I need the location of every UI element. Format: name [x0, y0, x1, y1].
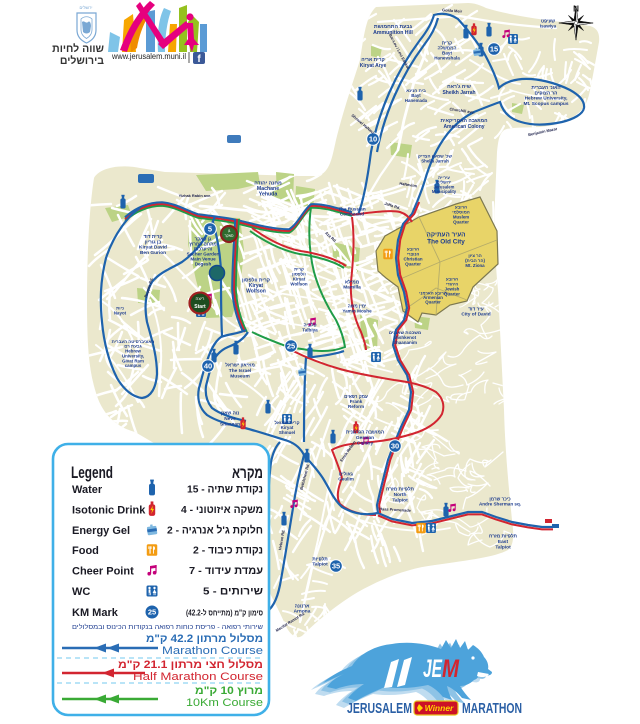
svg-text:Energy Gel: Energy Gel — [72, 525, 130, 537]
svg-text:האונ' העברית: האונ' העברית — [531, 85, 560, 91]
svg-text:Quarter: Quarter — [453, 219, 469, 224]
svg-text:Water: Water — [72, 484, 103, 496]
svg-text:East: East — [498, 539, 509, 545]
svg-text:M: M — [442, 655, 460, 683]
svg-text:Shella Jarrah: Shella Jarrah — [421, 158, 449, 163]
svg-text:JE: JE — [423, 655, 443, 683]
svg-text:Kiryat Arye: Kiryat Arye — [360, 63, 387, 69]
svg-text:קרית דוד: קרית דוד — [143, 235, 162, 240]
svg-text:שירותים - 5: שירותים - 5 — [203, 586, 264, 598]
svg-text:Benjamin Mazar: Benjamin Mazar — [528, 126, 558, 137]
svg-text:מקרא: מקרא — [232, 465, 263, 482]
svg-text:Marathon Course: Marathon Course — [162, 645, 263, 657]
svg-text:ממילא: ממילא — [345, 279, 360, 285]
svg-text:Mt. Scopus campus: Mt. Scopus campus — [523, 101, 568, 107]
svg-text:מסלול חצי מרתון 21.1 ק"מ: מסלול חצי מרתון 21.1 ק"מ — [118, 658, 263, 671]
svg-text:חלוקת ג'ל אנרגיה - 2: חלוקת ג'ל אנרגיה - 2 — [167, 525, 263, 537]
svg-text:Yizhak Rabin ave.: Yizhak Rabin ave. — [179, 193, 212, 198]
svg-text:City of David: City of David — [461, 312, 490, 318]
svg-text:מוזיאון ישראל: מוזיאון ישראל — [225, 363, 255, 369]
svg-text:Municipality: Municipality — [432, 189, 457, 194]
svg-text:גן: גן — [228, 229, 231, 233]
svg-text:Shmuel: Shmuel — [279, 430, 295, 435]
svg-text:שירותי רפואה - פריסת כוחות רפו: שירותי רפואה - פריסת כוחות רפואה בנקודות… — [72, 623, 263, 631]
svg-text:MARATHON: MARATHON — [462, 701, 522, 717]
svg-text:ריצה: ריצה — [196, 296, 205, 301]
svg-text:תלפיות מזרח: תלפיות מזרח — [489, 534, 518, 540]
svg-text:Compound: Compound — [340, 212, 364, 217]
svg-text:JERUSALEM: JERUSALEM — [347, 701, 412, 717]
svg-text:Reform: Reform — [348, 404, 364, 409]
svg-text:סאקר: סאקר — [224, 234, 234, 238]
svg-text:Degesh: Degesh — [195, 262, 212, 267]
svg-text:Legend: Legend — [71, 463, 113, 482]
svg-text:Shaananim: Shaananim — [393, 340, 417, 345]
svg-text:סימון ק"מ (מתייחס ל-42.2): סימון ק"מ (מתייחס ל-42.2) — [186, 609, 263, 618]
svg-text:Wolfson: Wolfson — [246, 289, 266, 295]
svg-text:North: North — [394, 492, 407, 498]
svg-text:www.jerusalem.muni.il: www.jerusalem.muni.il — [111, 51, 186, 61]
svg-text:Talbiya: Talbiya — [302, 328, 318, 333]
svg-text:American Colony: American Colony — [443, 124, 484, 130]
svg-text:campus: campus — [125, 363, 142, 368]
svg-text:עמדת עידוד - 7: עמדת עידוד - 7 — [189, 565, 263, 577]
svg-text:Colony: Colony — [357, 440, 374, 446]
svg-text:The Israel: The Israel — [229, 368, 251, 374]
svg-text:Sheikh Jarrah: Sheikh Jarrah — [442, 90, 475, 96]
svg-text:40: 40 — [204, 362, 212, 371]
svg-text:Talpiot: Talpiot — [495, 544, 511, 550]
svg-text:תלפיות: תלפיות — [312, 556, 328, 562]
svg-text:German: German — [356, 435, 374, 441]
svg-text:WC: WC — [72, 586, 90, 598]
svg-text:The Old City: The Old City — [427, 239, 465, 246]
svg-text:Andre Sherman sq.: Andre Sherman sq. — [479, 502, 521, 507]
svg-text:15: 15 — [490, 45, 498, 54]
svg-text:Talpiot: Talpiot — [392, 497, 408, 503]
svg-text:ירושלים: ירושלים — [80, 5, 93, 10]
svg-text:KM Mark: KM Mark — [72, 607, 119, 619]
svg-text:Shaanan: Shaanan — [220, 421, 240, 427]
svg-text:מרוץ 10 ק"מ: מרוץ 10 ק"מ — [195, 685, 263, 697]
svg-text:Isotonic Drink: Isotonic Drink — [72, 505, 146, 517]
svg-text:העיר העתיקה: העיר העתיקה — [427, 232, 466, 239]
svg-text:Hanevshala: Hanevshala — [434, 56, 460, 61]
svg-text:Half Marathon Course: Half Marathon Course — [133, 671, 263, 683]
svg-text:Quarter: Quarter — [405, 261, 421, 266]
svg-text:Food: Food — [72, 545, 99, 557]
svg-text:מסלול מרתון 42.2 ק"מ: מסלול מרתון 42.2 ק"מ — [146, 632, 263, 645]
svg-text:Hanemada: Hanemada — [405, 98, 428, 103]
svg-text:10: 10 — [369, 135, 377, 144]
svg-text:Ben Gurion: Ben Gurion — [140, 250, 166, 256]
svg-text:Mt. Ziona: Mt. Ziona — [465, 263, 485, 268]
svg-text:נקודת שתיה - 15: נקודת שתיה - 15 — [187, 484, 263, 496]
svg-text:30: 30 — [391, 442, 399, 451]
svg-text:Winner: Winner — [425, 703, 454, 713]
svg-text:Wolfson: Wolfson — [290, 281, 308, 286]
svg-text:5: 5 — [208, 225, 212, 234]
svg-text:Neve: Neve — [224, 416, 236, 422]
svg-text:Kiryat David: Kiryat David — [139, 245, 167, 251]
svg-text:Quarter: Quarter — [425, 300, 441, 305]
svg-text:35: 35 — [332, 562, 340, 571]
svg-text:Cheer Point: Cheer Point — [72, 566, 134, 578]
svg-text:בירושלים: בירושלים — [60, 55, 104, 67]
svg-text:10Km Course: 10Km Course — [186, 697, 263, 709]
svg-text:Mamilla: Mamilla — [343, 285, 361, 291]
svg-text:נוה שאנן: נוה שאנן — [221, 412, 240, 417]
svg-text:Nayot: Nayot — [114, 310, 127, 315]
svg-text:Museum: Museum — [230, 373, 249, 379]
svg-text:המושבה הגרמנית: המושבה הגרמנית — [346, 431, 384, 436]
svg-text:נקודת כיבוד - 2: נקודת כיבוד - 2 — [193, 545, 263, 557]
svg-text:Yehuda: Yehuda — [259, 192, 278, 198]
svg-text:Geulim: Geulim — [338, 477, 354, 482]
svg-text:שווה לחיות: שווה לחיות — [52, 43, 104, 55]
svg-text:משקה איזוטוני - 4: משקה איזוטוני - 4 — [181, 504, 263, 516]
svg-text:Isawiya: Isawiya — [540, 24, 557, 29]
svg-text:Hebrew University,: Hebrew University, — [525, 96, 568, 102]
svg-text:Talpiot: Talpiot — [312, 562, 328, 568]
svg-text:תלפיות מזרח: תלפיות מזרח — [386, 487, 415, 493]
svg-text:Yamin Moshe: Yamin Moshe — [342, 309, 372, 314]
svg-text:Start: Start — [194, 304, 206, 310]
svg-text:25: 25 — [287, 342, 295, 351]
svg-text:25: 25 — [148, 608, 156, 617]
